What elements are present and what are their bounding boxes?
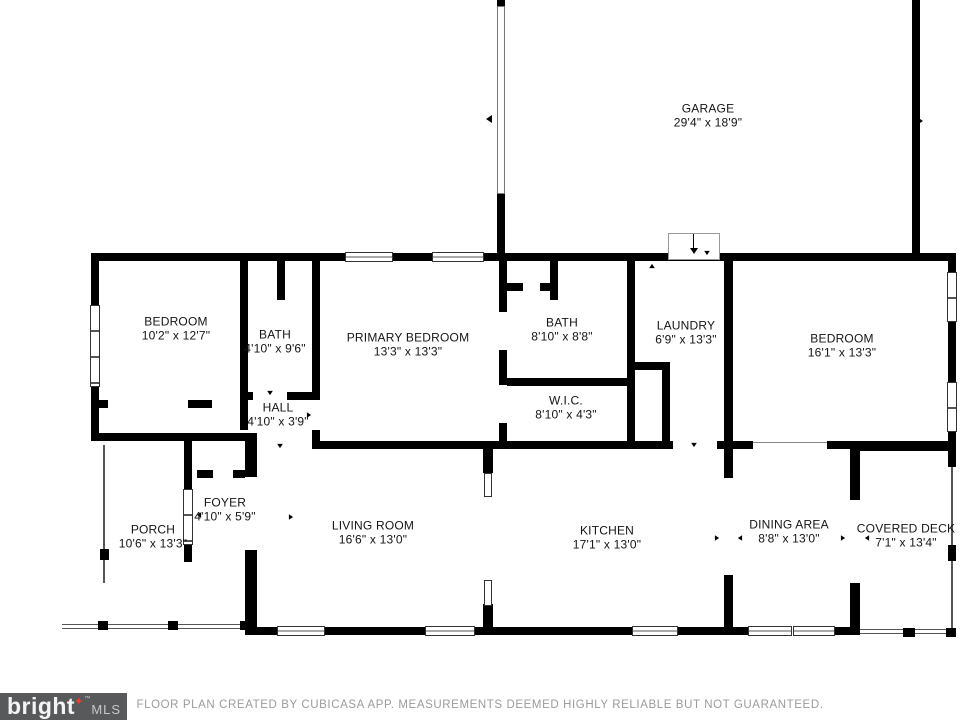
wall-primary-right-b (499, 350, 507, 385)
room-label-foyer: FOYER 4'10" x 5'9" (194, 497, 256, 524)
wall-laundry-closet-top (635, 362, 662, 370)
room-name: BATH (531, 317, 593, 331)
wall-garage-right (912, 0, 920, 261)
bright-mls-logo: bright✦™MLS (0, 693, 127, 720)
wall-bottom-d (678, 627, 748, 635)
porch-railing-left (103, 445, 105, 583)
room-label-living-room: LIVING ROOM 16'6" x 13'0" (332, 520, 414, 547)
room-dims: 10'2" x 12'7" (142, 329, 210, 343)
wall-bath1-bottom-left (240, 392, 253, 400)
wall-dining-divider-top (724, 449, 733, 478)
porch-post (100, 549, 109, 560)
wall-bath2-wic-divider (507, 378, 635, 386)
wall-bath2-shower-stub-h (540, 283, 558, 291)
wall-bedroom1-closet-bottom (91, 433, 193, 441)
room-name: GARAGE (674, 103, 742, 117)
window (432, 252, 484, 262)
wall-deck-top (860, 443, 956, 451)
window (947, 382, 957, 432)
wall-bath2-shower-stub-v (550, 261, 558, 300)
window (632, 626, 678, 636)
deck-post (946, 628, 956, 637)
room-dims: 8'8" x 13'0" (749, 532, 829, 546)
wall-kitchen-top-a (507, 441, 627, 449)
wall-kitchen-top-b (635, 441, 673, 449)
room-dims: 13'3" x 13'3" (347, 345, 470, 359)
door-swing-arrow (704, 251, 710, 255)
room-label-covered-deck: COVERED DECK 7'1" x 13'4" (857, 523, 955, 550)
wall-foyer-closet-stub (233, 470, 245, 478)
room-label-bath-2: BATH 8'10" x 8'8" (531, 317, 593, 344)
wall-top-exterior (91, 253, 956, 261)
room-dims: 4'10" x 3'9" (247, 415, 309, 429)
garage-door-opening (497, 6, 505, 194)
logo-suffix-text: MLS (91, 702, 121, 717)
room-name: KITCHEN (573, 525, 641, 539)
room-label-wic: W.I.C. 8'10" x 4'3" (535, 395, 597, 422)
room-name: BATH (244, 329, 306, 343)
room-label-porch: PORCH 10'6" x 13'3" (119, 524, 187, 551)
logo-brand-text: bright (7, 693, 75, 719)
room-name: COVERED DECK (857, 523, 955, 537)
door-opening-arrow (691, 443, 697, 447)
wall-kitchen-top-c (717, 441, 753, 449)
star-icon: ✦ (74, 695, 83, 708)
wall-bedroom1-closet-stub (99, 400, 108, 408)
divider-cased-opening (484, 473, 492, 497)
wall-garage-left (497, 193, 505, 261)
dimension-arrow-icon (917, 117, 923, 125)
deck-railing-right (951, 561, 953, 633)
door-opening-arrow (289, 514, 293, 520)
wall-primary-left (312, 261, 320, 400)
room-name: LAUNDRY (655, 320, 717, 334)
wall-bath2-shower-stub-h (507, 283, 523, 291)
opening-arrow (738, 535, 742, 541)
opening-arrow (649, 264, 655, 268)
wall-primary-right-a (499, 261, 507, 312)
wall-living-top (312, 441, 507, 449)
wall-foyer-closet-stub (197, 470, 213, 478)
door-opening-arrow (267, 391, 273, 395)
room-dims: 16'6" x 13'0" (332, 533, 414, 547)
wall-laundry-closet-right (662, 362, 670, 449)
window (425, 626, 475, 636)
deck-post (948, 449, 956, 467)
room-name: LIVING ROOM (332, 520, 414, 534)
wall-deck-divider-top (850, 449, 860, 500)
porch-post (240, 621, 250, 630)
porch-railing-bottom (62, 624, 248, 629)
room-dims: 8'10" x 4'3" (535, 408, 597, 422)
door-swing-arrow (690, 248, 698, 254)
porch-post (168, 621, 178, 630)
footer-disclaimer: FLOOR PLAN CREATED BY CUBICASA APP. MEAS… (0, 699, 960, 711)
wall-dining-divider-bottom (724, 575, 733, 635)
room-label-kitchen: KITCHEN 17'1" x 13'0" (573, 525, 641, 552)
room-dims: 6'9" x 13'3" (655, 333, 717, 347)
wall-bottom-a (257, 627, 277, 635)
room-dims: 8'10" x 8'8" (531, 330, 593, 344)
room-dims: 7'1" x 13'4" (857, 536, 955, 550)
room-label-primary-bedroom: PRIMARY BEDROOM 13'3" x 13'3" (347, 332, 470, 359)
wall-bottom-e (835, 627, 860, 635)
room-name: DINING AREA (749, 519, 829, 533)
deck-post (903, 628, 915, 637)
room-label-bedroom-left: BEDROOM 10'2" x 12'7" (142, 316, 210, 343)
room-name: BEDROOM (808, 333, 876, 347)
window (345, 252, 393, 262)
room-name: BEDROOM (142, 316, 210, 330)
room-dims: 4'10" x 9'6" (244, 342, 306, 356)
room-dims: 10'6" x 13'3" (119, 537, 187, 551)
door-swing-line (693, 234, 694, 248)
window (277, 626, 325, 636)
room-label-garage: GARAGE 29'4" x 18'9" (674, 103, 742, 130)
wall-bedroom2-left (724, 261, 733, 449)
dimension-arrow-icon (486, 115, 492, 123)
wall-foyer-left-upper (184, 441, 192, 490)
room-label-hall: HALL 4'10" x 3'9" (247, 402, 309, 429)
opening-arrow (277, 444, 283, 448)
room-label-bedroom-right: BEDROOM 16'1" x 13'3" (808, 333, 876, 360)
floor-plan: GARAGE 29'4" x 18'9" BEDROOM 10'2" x 12'… (0, 0, 960, 720)
window (947, 272, 957, 322)
wall-laundry-left (627, 261, 635, 449)
room-dims: 29'4" x 18'9" (674, 116, 742, 130)
room-name: HALL (247, 402, 309, 416)
divider-cased-opening (484, 580, 492, 606)
wall-bottom-b (325, 627, 425, 635)
room-name: W.I.C. (535, 395, 597, 409)
room-name: PRIMARY BEDROOM (347, 332, 470, 346)
window (748, 626, 792, 636)
room-label-bath-1: BATH 4'10" x 9'6" (244, 329, 306, 356)
opening-arrow (841, 535, 845, 541)
porch-post (98, 621, 108, 630)
room-label-laundry: LAUNDRY 6'9" x 13'3" (655, 320, 717, 347)
room-label-dining-area: DINING AREA 8'8" x 13'0" (749, 519, 829, 546)
wall-kitchen-divider-top (483, 449, 493, 473)
room-name: PORCH (119, 524, 187, 538)
window (793, 626, 835, 636)
wall-bottom-c (475, 627, 632, 635)
garage-entry-door (668, 233, 720, 260)
wall-bath1-shower-stub (277, 261, 285, 300)
trademark-icon: ™ (84, 696, 90, 702)
room-dims: 16'1" x 13'3" (808, 346, 876, 360)
room-dims: 17'1" x 13'0" (573, 538, 641, 552)
window (90, 305, 100, 387)
wall-bedroom1-right (240, 261, 248, 392)
wall-foyer-closet-right (245, 433, 257, 477)
opening-arrow (715, 535, 719, 541)
room-dims: 4'10" x 5'9" (194, 510, 256, 524)
wall-bedroom1-closet-stub (188, 400, 212, 408)
room-name: FOYER (194, 497, 256, 511)
opening-line (753, 442, 827, 443)
